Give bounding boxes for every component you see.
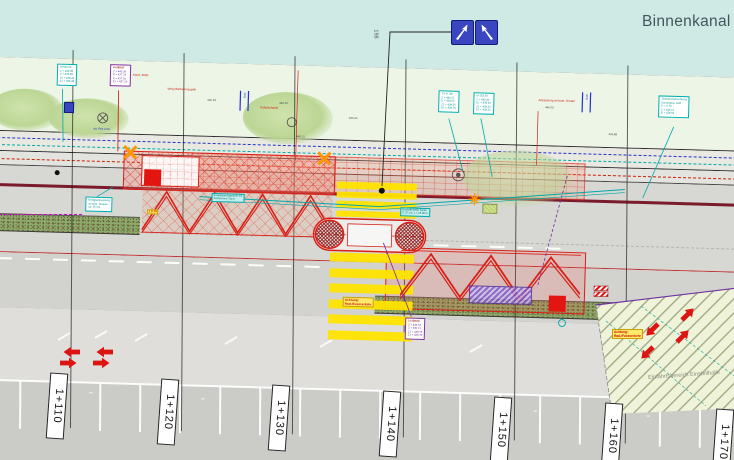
- sign-leader-line: [382, 32, 452, 186]
- note-label-warning_2: Achtung:Rad-/Fussverkehr: [612, 329, 643, 339]
- site-plan-viewport: 0+062.00Z + 440.39Z + 439.95Z1 + 439.42Z…: [0, 0, 734, 460]
- pedestrian-crossing-sign-icon: [475, 20, 498, 45]
- pedestrian-crossing-sign-icon: [451, 20, 474, 45]
- station-label-1-160: 1+160: [601, 402, 624, 460]
- utility-circle-icon: [559, 320, 566, 327]
- parking-direction-arrow-icon: [60, 347, 113, 368]
- screen-overlay: [0, 0, 734, 460]
- note-line: Rad-/Fussverkehr: [614, 334, 641, 338]
- station-label-1-170: 1+170: [712, 408, 734, 460]
- faded-stall-dash: [58, 331, 482, 352]
